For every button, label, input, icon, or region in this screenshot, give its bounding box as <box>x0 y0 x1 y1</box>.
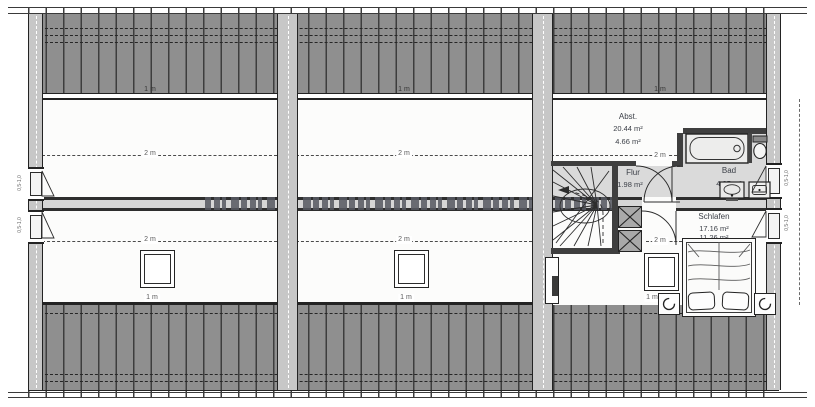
roof-batten-line <box>30 374 777 375</box>
dim-label-2m: 2 m <box>396 236 412 244</box>
dim-label-2m: 2 m <box>652 237 668 245</box>
rafter-tails-top <box>28 7 779 14</box>
dim-label-2m: 2 m <box>652 152 668 160</box>
wall-bad-top <box>683 128 766 134</box>
skylight-window-3 <box>644 253 679 291</box>
roof-batten-line <box>30 42 777 43</box>
dim-label-1m: 1 m <box>144 294 160 302</box>
roof-overhang-line <box>799 99 800 305</box>
window-mark: 0,5-1,0 <box>17 217 23 233</box>
room-flur-area: 1.98 m² <box>617 181 642 189</box>
roof-batten-line <box>30 28 777 29</box>
window-opening-left-1 <box>28 167 44 201</box>
chimney-block-2 <box>618 230 642 252</box>
exterior-wall-right <box>766 14 781 390</box>
headroom-2m-line <box>42 241 277 242</box>
dim-label-2m: 2 m <box>142 150 158 158</box>
roof-band-top <box>28 14 779 94</box>
chimney-block-1 <box>618 206 642 228</box>
roof-batten-line <box>30 35 777 36</box>
dim-label-1m: 1 m <box>652 86 668 94</box>
pillow-left <box>688 291 716 310</box>
room-abst-area-reduced: 4.66 m² <box>615 138 640 146</box>
headroom-2m-line <box>296 241 532 242</box>
dim-label-1m: 1 m <box>398 294 414 302</box>
party-wall-1 <box>277 14 298 390</box>
dim-label-2m: 2 m <box>142 236 158 244</box>
room-schlafen-area-total: 17.16 m² <box>699 225 729 233</box>
watermark-band <box>205 197 616 210</box>
pillow-right <box>722 291 750 310</box>
skylight-window-2 <box>394 250 429 288</box>
roof-batten-line <box>30 381 777 382</box>
party-wall-2 <box>532 14 553 390</box>
room-schlafen-name: Schlafen <box>698 213 729 222</box>
room-bad-area: 4.85 m² <box>716 180 741 188</box>
wall-bad-left <box>677 133 683 167</box>
wall-centerline <box>543 16 544 388</box>
headroom-2m-line <box>42 155 277 156</box>
room-flur-name: Flur <box>626 169 640 178</box>
wall-centerline <box>288 16 289 388</box>
floor-plan-sheet: 2 m 2 m 2 m 2 m 2 m 2 m 1 m 1 m 1 m 1 m … <box>0 0 815 407</box>
window-opening-right-1 <box>766 163 782 199</box>
window-opening-left-2 <box>28 210 44 244</box>
room-bad-name: Bad <box>722 167 736 176</box>
window-frame <box>30 172 42 196</box>
exterior-wall-left <box>28 14 43 390</box>
window-mark: 0,5-1,0 <box>784 215 790 231</box>
window-frame <box>30 215 42 239</box>
wall-stair-bottom <box>551 248 620 254</box>
rafter-tails-bottom <box>28 390 779 397</box>
skylight-inner-frame <box>144 254 171 284</box>
roof-band-bottom <box>28 305 779 391</box>
window-mark: 0,5-1,0 <box>784 170 790 186</box>
skylight-window-1 <box>140 250 175 288</box>
dim-label-2m: 2 m <box>396 150 412 158</box>
dim-label-1m: 1 m <box>142 86 158 94</box>
headroom-2m-line <box>296 155 532 156</box>
window-frame <box>768 213 780 239</box>
wardrobe-detail <box>552 276 558 296</box>
room-abst-name: Abst. <box>619 113 637 122</box>
eave-line-bottom-outer <box>8 397 807 398</box>
wall-centerline <box>36 16 37 388</box>
wall-abst-flur <box>551 161 636 166</box>
nightstand-left <box>658 293 680 315</box>
skylight-inner-frame <box>648 257 675 287</box>
room-abst-area-total: 20.44 m² <box>613 125 643 133</box>
nightstand-right <box>754 293 776 315</box>
dim-label-1m: 1 m <box>396 86 412 94</box>
window-opening-right-2 <box>766 208 782 244</box>
wall-centerline <box>774 16 775 388</box>
window-frame <box>768 168 780 194</box>
window-mark: 0,5-1,0 <box>17 175 23 191</box>
door-opening-schlafen <box>642 197 676 211</box>
skylight-inner-frame <box>398 254 425 284</box>
